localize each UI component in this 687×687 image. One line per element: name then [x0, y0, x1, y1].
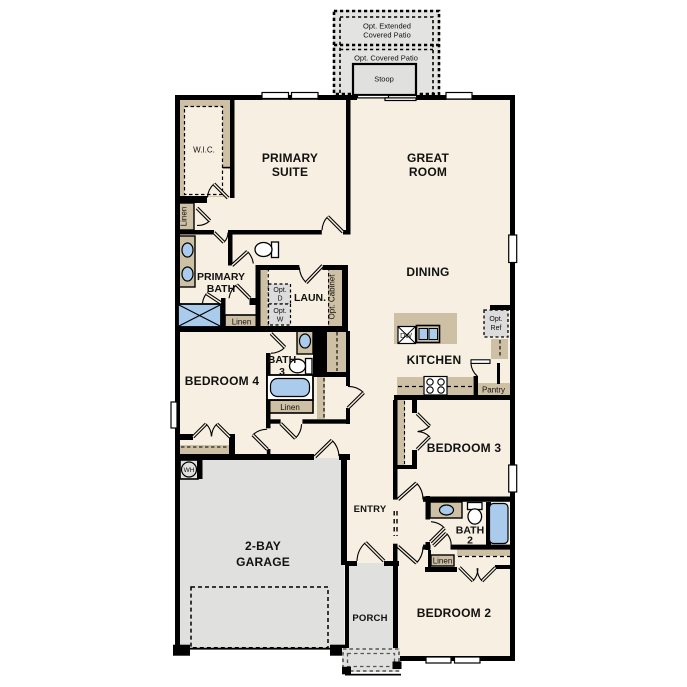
svg-text:PORCH: PORCH: [352, 613, 387, 624]
svg-text:PRIMARY: PRIMARY: [197, 271, 245, 283]
svg-text:WH: WH: [184, 467, 195, 474]
svg-text:Opt. Covered Patio: Opt. Covered Patio: [354, 54, 418, 63]
svg-text:Linen: Linen: [280, 403, 300, 412]
svg-text:Linen: Linen: [232, 318, 252, 327]
svg-text:SUITE: SUITE: [272, 165, 308, 179]
svg-text:GREAT: GREAT: [407, 151, 450, 165]
svg-text:3: 3: [279, 366, 285, 378]
svg-text:W.I.C.: W.I.C.: [193, 146, 215, 155]
svg-text:DW: DW: [400, 333, 412, 340]
svg-text:Opt.: Opt.: [273, 308, 286, 315]
svg-text:DINING: DINING: [406, 265, 449, 279]
svg-text:Ref: Ref: [491, 325, 502, 332]
svg-text:2-BAY: 2-BAY: [245, 539, 281, 553]
svg-text:Linen: Linen: [433, 557, 453, 566]
svg-text:D: D: [277, 296, 282, 303]
svg-text:BATH: BATH: [207, 283, 235, 295]
svg-text:Opt. Extended: Opt. Extended: [363, 22, 411, 31]
svg-text:Covered Patio: Covered Patio: [363, 31, 411, 40]
svg-text:Opt. Cabinet: Opt. Cabinet: [328, 274, 337, 320]
svg-text:BEDROOM 3: BEDROOM 3: [427, 441, 502, 455]
svg-text:PRIMARY: PRIMARY: [262, 151, 318, 165]
svg-text:W: W: [277, 317, 284, 324]
svg-text:BEDROOM 4: BEDROOM 4: [185, 374, 260, 388]
svg-text:ENTRY: ENTRY: [354, 504, 387, 515]
svg-text:BATH: BATH: [268, 354, 296, 366]
svg-text:LAUN.: LAUN.: [294, 292, 326, 304]
svg-text:KITCHEN: KITCHEN: [407, 353, 462, 367]
svg-text:GARAGE: GARAGE: [236, 555, 290, 569]
svg-text:Opt.: Opt.: [489, 316, 502, 323]
svg-text:2: 2: [467, 535, 473, 547]
svg-text:ROOM: ROOM: [409, 165, 447, 179]
svg-text:Stoop: Stoop: [374, 75, 394, 84]
svg-text:Linen: Linen: [180, 207, 189, 227]
svg-text:Pantry: Pantry: [482, 386, 505, 395]
svg-text:BEDROOM 2: BEDROOM 2: [417, 606, 492, 620]
svg-text:Opt.: Opt.: [273, 287, 286, 294]
